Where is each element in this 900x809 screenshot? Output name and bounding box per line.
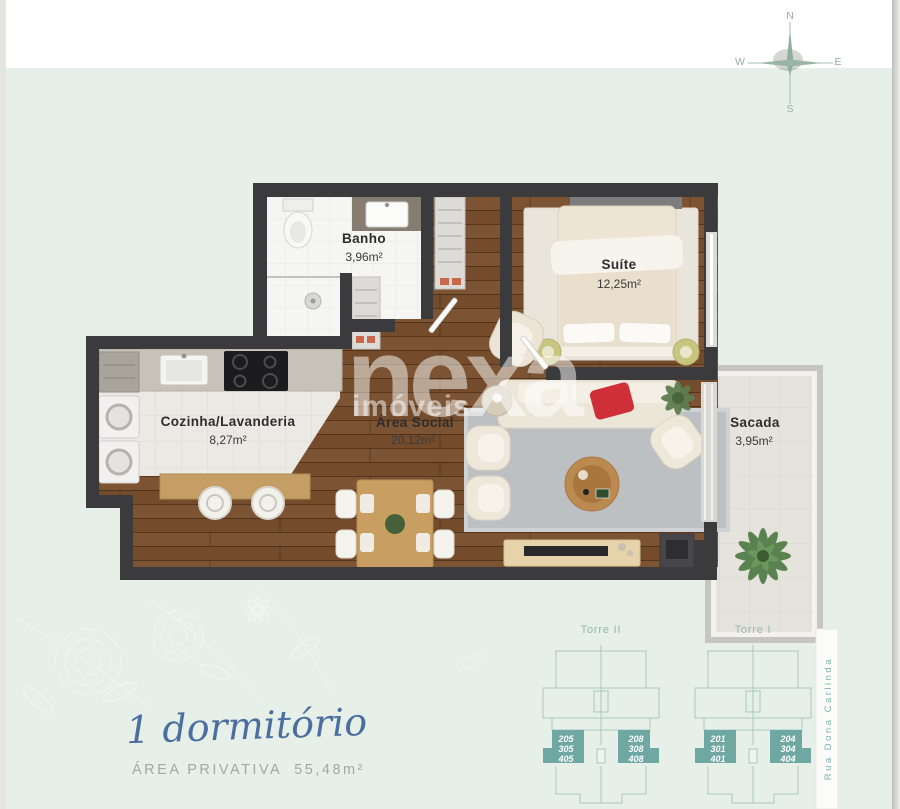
room-label-banho: Banho [342, 231, 386, 246]
torre-ii-label: Torre II [581, 624, 622, 636]
room-label-area-social: Área Social [376, 415, 454, 430]
torre-i-left-units: 201 301 401 [710, 735, 725, 764]
tv [524, 546, 608, 556]
room-area-sacada: 3,95m² [735, 434, 772, 448]
room-area-area-social: 20,12m² [391, 433, 435, 447]
chair [336, 530, 356, 558]
compass-s: S [786, 103, 793, 115]
left-edge-strip [0, 0, 6, 809]
compass-n: N [786, 10, 794, 22]
room-area-banho: 3,96m² [345, 250, 382, 264]
bar-stool [252, 487, 284, 519]
chair [336, 490, 356, 518]
coffee-table [565, 457, 619, 511]
cabinet [99, 352, 139, 392]
room-label-suite: Suíte [601, 257, 636, 272]
bar-counter [160, 474, 310, 499]
compass-w: W [735, 56, 745, 68]
toilet [283, 199, 313, 211]
cooktop [224, 351, 288, 391]
chair [434, 490, 454, 518]
private-area-label: ÁREA PRIVATIVA [132, 762, 282, 778]
street-name: Rua Dona Carlinda [818, 630, 838, 808]
compass-e: E [834, 56, 841, 68]
private-area-line: ÁREA PRIVATIVA 55,48m² [132, 762, 365, 778]
room-label-sacada: Sacada [730, 415, 780, 430]
torre-i-right-units: 204 304 404 [780, 735, 795, 764]
floorplan-page: N E S W nexa imóveis Banho 3,96m² Suíte … [0, 0, 900, 809]
balcony-door [701, 382, 717, 522]
chair [434, 530, 454, 558]
plant [661, 381, 695, 415]
right-edge-strip [892, 0, 900, 809]
unit-type-title: 1 dormitório [125, 700, 368, 752]
tv-sideboard [504, 540, 640, 566]
torre-ii-right-units: 208 308 408 [628, 735, 643, 764]
bar-stool [199, 487, 231, 519]
armchair [466, 476, 510, 520]
torre-ii-left-units: 205 305 405 [558, 735, 573, 764]
private-area-value: 55,48m² [294, 762, 365, 778]
room-label-cozinha: Cozinha/Lavanderia [161, 414, 296, 429]
room-area-suite: 12,25m² [597, 277, 641, 291]
top-band [0, 0, 900, 68]
room-area-cozinha: 8,27m² [209, 433, 246, 447]
torre-i-label: Torre I [735, 624, 772, 636]
